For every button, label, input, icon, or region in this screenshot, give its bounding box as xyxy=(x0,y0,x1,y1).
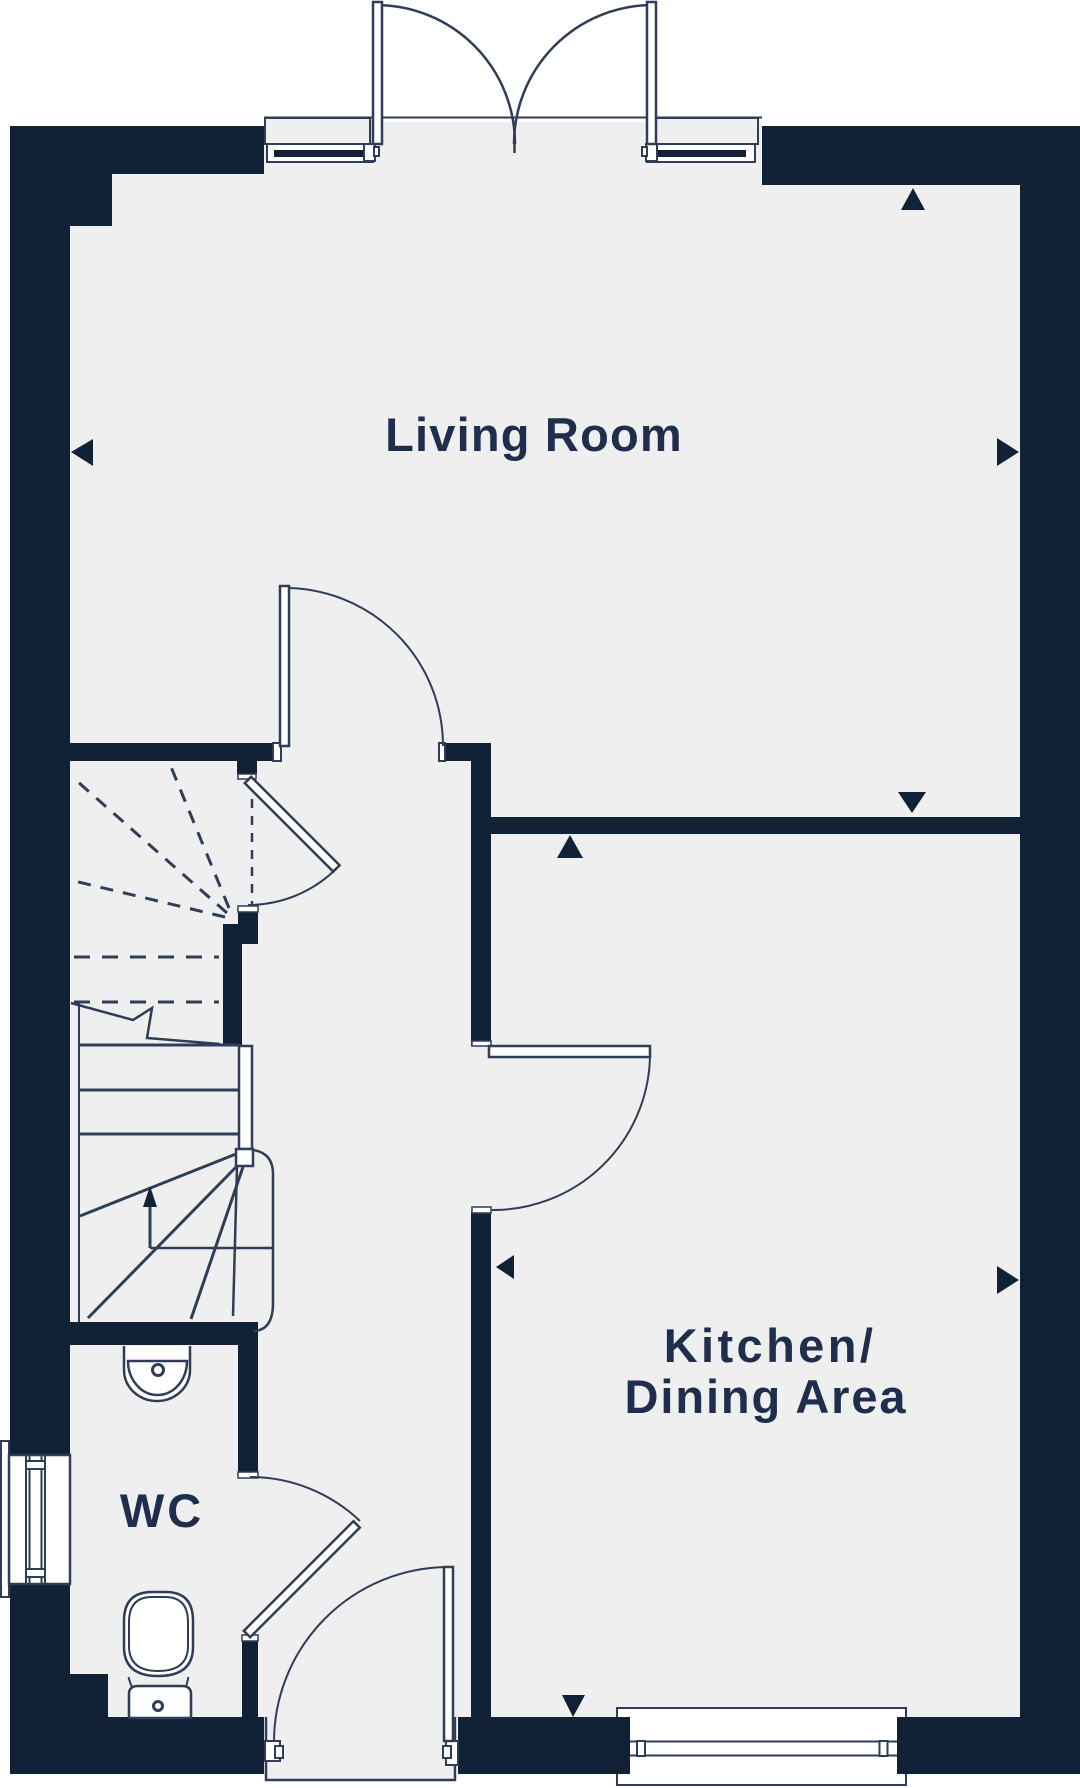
svg-text:Dining Area: Dining Area xyxy=(625,1370,908,1423)
svg-text:Kitchen/: Kitchen/ xyxy=(664,1319,877,1372)
svg-text:WC: WC xyxy=(120,1484,204,1537)
svg-text:Living Room: Living Room xyxy=(385,408,683,461)
